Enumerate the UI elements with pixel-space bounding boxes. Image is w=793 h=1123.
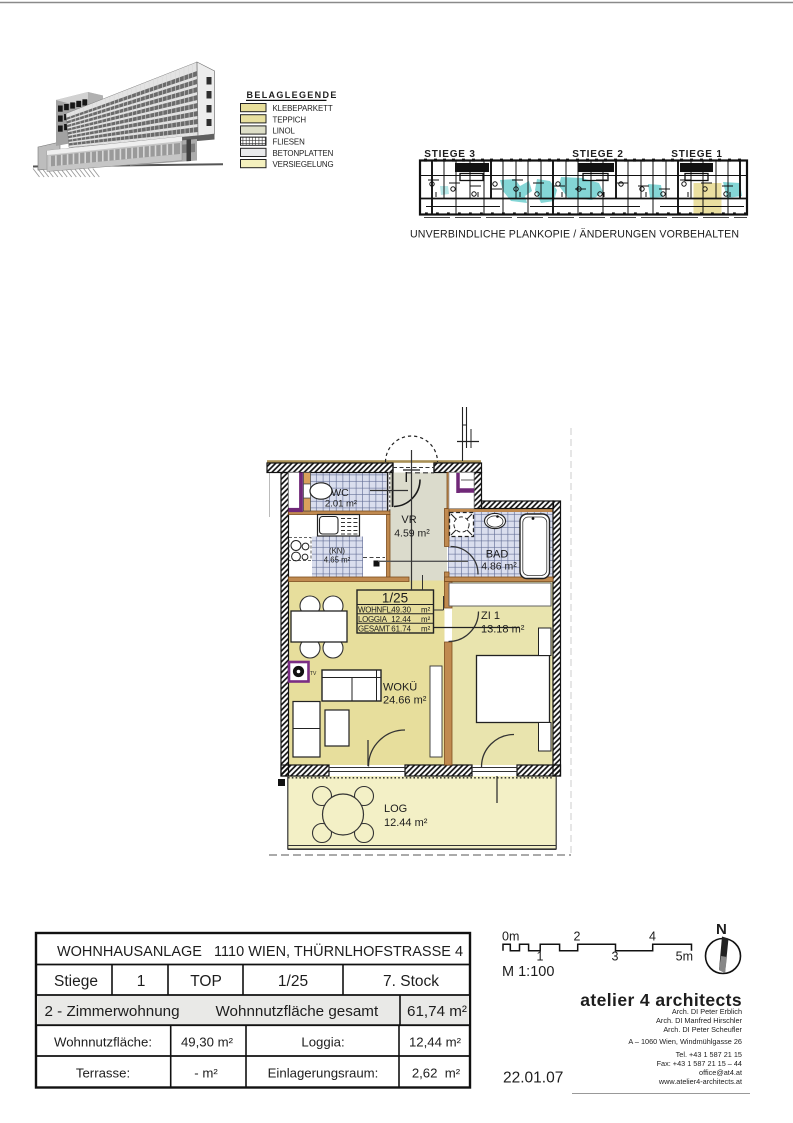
svg-text:STIEGE 1: STIEGE 1 (671, 149, 722, 160)
svg-text:WOKÜ: WOKÜ (383, 682, 417, 694)
svg-text:22.01.07: 22.01.07 (503, 1070, 563, 1087)
svg-text:1: 1 (137, 973, 146, 990)
svg-text:5m: 5m (676, 950, 693, 964)
svg-text:- m²: - m² (194, 1066, 218, 1081)
svg-text:1: 1 (537, 950, 544, 964)
svg-text:WOHNFL.: WOHNFL. (358, 605, 393, 614)
svg-text:A – 1060 Wien, Windmühlgasse 2: A – 1060 Wien, Windmühlgasse 26 (628, 1037, 742, 1046)
svg-text:WOHNHAUSANLAGE 1110 WIEN, TH: WOHNHAUSANLAGE 1110 WIEN, THÜRNLHOFSTRAS… (57, 942, 463, 960)
svg-text:24.66 m²: 24.66 m² (383, 695, 427, 707)
svg-text:TV: TV (310, 671, 317, 677)
svg-text:WC: WC (331, 487, 349, 499)
svg-text:BELAGLEGENDE: BELAGLEGENDE (247, 90, 338, 100)
svg-text:Wohnnutzfläche gesamt: Wohnnutzfläche gesamt (216, 1003, 379, 1020)
svg-text:Einlagerungsraum:: Einlagerungsraum: (268, 1066, 379, 1081)
svg-text:Wohnnutzfläche:: Wohnnutzfläche: (54, 1035, 152, 1050)
svg-text:61.74: 61.74 (391, 625, 411, 634)
svg-text:VR: VR (401, 514, 416, 526)
svg-text:STIEGE 2: STIEGE 2 (572, 149, 623, 160)
svg-text:FLIESEN: FLIESEN (273, 138, 306, 147)
svg-text:KLEBEPARKETT: KLEBEPARKETT (273, 104, 333, 113)
svg-text:4.59 m²: 4.59 m² (394, 528, 430, 540)
svg-text:LOG: LOG (384, 803, 407, 815)
svg-text:TEPPICH: TEPPICH (273, 115, 307, 124)
svg-text:1/25: 1/25 (278, 973, 308, 990)
svg-text:Tel. +43 1 587 21 15: Tel. +43 1 587 21 15 (676, 1050, 742, 1059)
svg-text:2.01 m²: 2.01 m² (325, 499, 357, 510)
svg-text:49.30: 49.30 (391, 605, 411, 614)
svg-text:LINOL: LINOL (273, 127, 296, 136)
svg-text:12.44: 12.44 (391, 615, 411, 624)
svg-text:2,62 m²: 2,62 m² (412, 1066, 461, 1081)
svg-text:m²: m² (421, 615, 431, 624)
svg-text:office@at4.at: office@at4.at (699, 1068, 742, 1077)
svg-text:Loggia:: Loggia: (301, 1035, 344, 1050)
svg-text:VERSIEGELUNG: VERSIEGELUNG (273, 160, 334, 169)
svg-text:49,30 m²: 49,30 m² (181, 1035, 234, 1050)
svg-text:2: 2 (574, 930, 581, 944)
svg-text:(KN): (KN) (329, 547, 345, 556)
svg-text:Arch. DI Manfred Hirschler: Arch. DI Manfred Hirschler (656, 1016, 743, 1025)
svg-text:N: N (716, 921, 727, 938)
svg-text:UNVERBINDLICHE PLANKOPIE / Ä: UNVERBINDLICHE PLANKOPIE / ÄNDERUNGEN VO… (410, 229, 739, 241)
svg-text:BAD: BAD (486, 549, 509, 561)
svg-text:www.atelier4-architects.at: www.atelier4-architects.at (658, 1077, 742, 1086)
svg-text:TOP: TOP (190, 973, 222, 990)
svg-text:3: 3 (612, 950, 619, 964)
svg-text:m²: m² (421, 625, 431, 634)
svg-text:1/25: 1/25 (382, 591, 408, 606)
svg-text:STIEGE 3: STIEGE 3 (424, 149, 475, 160)
svg-text:4.86 m²: 4.86 m² (481, 561, 517, 573)
svg-text:Arch. DI Peter Scheufler: Arch. DI Peter Scheufler (663, 1025, 742, 1034)
svg-text:Arch. DI Peter Erblich: Arch. DI Peter Erblich (672, 1007, 742, 1016)
svg-text:Stiege: Stiege (54, 973, 98, 990)
svg-text:ZI 1: ZI 1 (481, 610, 500, 622)
svg-text:Terrasse:: Terrasse: (76, 1066, 130, 1081)
svg-text:Fax: +43 1 587 21 15 – 44: Fax: +43 1 587 21 15 – 44 (657, 1059, 742, 1068)
svg-text:7. Stock: 7. Stock (383, 973, 439, 990)
svg-text:0m: 0m (502, 930, 519, 944)
svg-text:4.65 m²: 4.65 m² (324, 556, 351, 565)
svg-text:LOGGIA: LOGGIA (358, 615, 388, 624)
svg-text:4: 4 (649, 930, 656, 944)
svg-text:2 - Zimmerwohnung: 2 - Zimmerwohnung (45, 1003, 180, 1020)
svg-text:12,44 m²: 12,44 m² (409, 1035, 462, 1050)
svg-text:M 1:100: M 1:100 (502, 964, 554, 980)
svg-text:m²: m² (421, 605, 431, 614)
svg-text:13.18 m²: 13.18 m² (481, 624, 525, 636)
svg-text:BETONPLATTEN: BETONPLATTEN (273, 149, 334, 158)
svg-text:GESAMT: GESAMT (358, 625, 390, 634)
svg-text:12.44 m²: 12.44 m² (384, 817, 428, 829)
svg-text:61,74 m²: 61,74 m² (407, 1003, 467, 1020)
